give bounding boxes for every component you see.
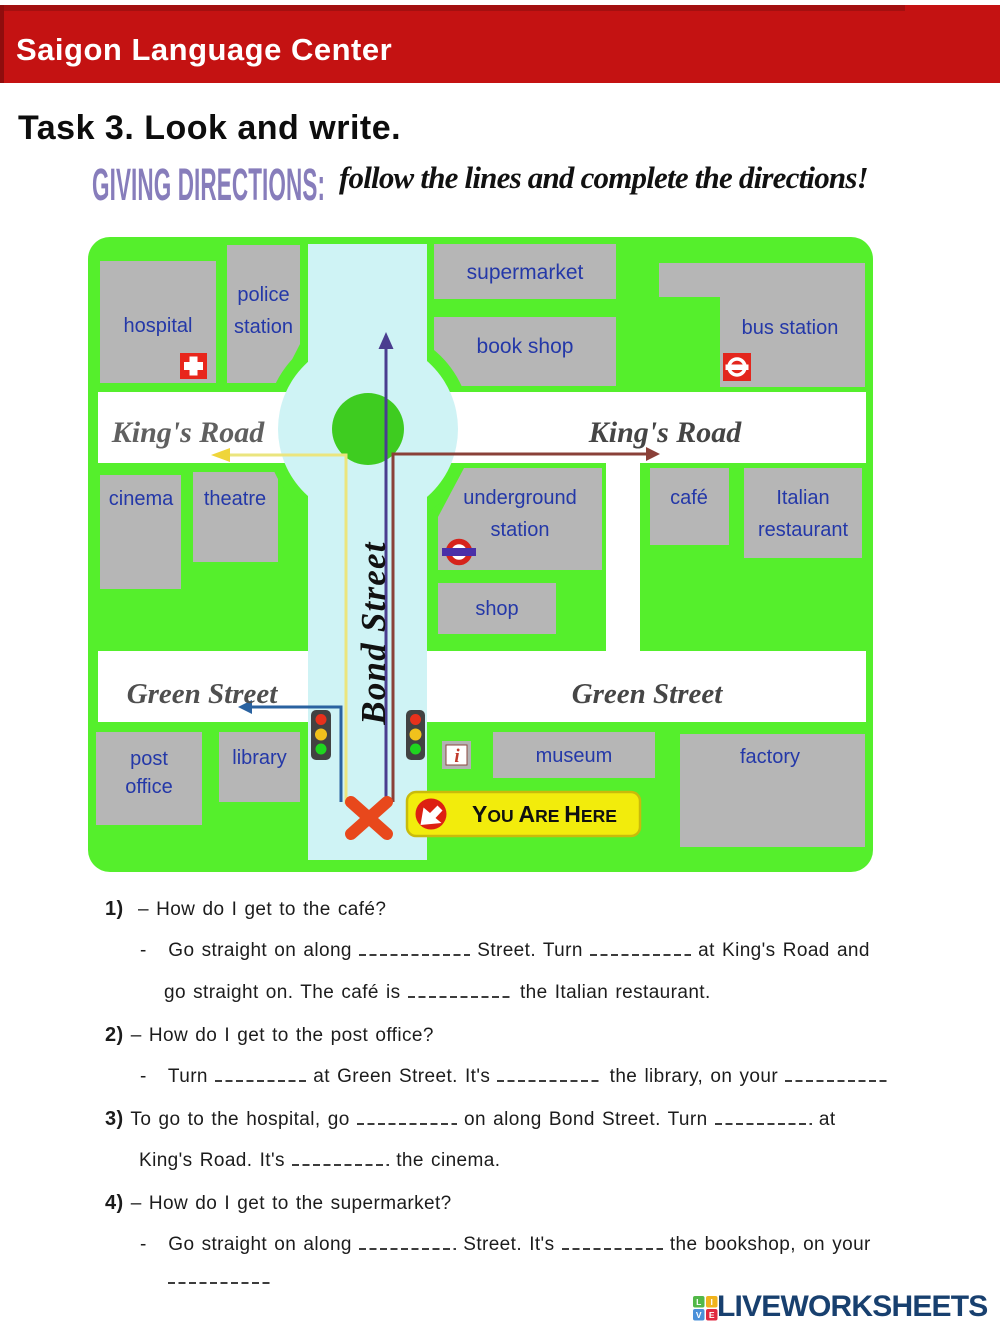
- svg-text:post: post: [130, 748, 168, 770]
- svg-text:underground: underground: [463, 487, 576, 509]
- svg-text:King's Road: King's Road: [588, 416, 743, 449]
- svg-text:station: station: [491, 519, 550, 541]
- svg-text:i: i: [454, 746, 460, 767]
- svg-text:cinema: cinema: [109, 488, 174, 510]
- svg-text:police: police: [237, 284, 289, 306]
- svg-text:station: station: [234, 316, 293, 338]
- svg-text:bus station: bus station: [742, 317, 839, 339]
- svg-text:book shop: book shop: [477, 335, 574, 358]
- svg-text:factory: factory: [740, 746, 800, 768]
- svg-text:Italian: Italian: [776, 487, 829, 509]
- svg-text:V: V: [696, 1310, 702, 1320]
- svg-text:Bond Street: Bond Street: [354, 541, 393, 725]
- svg-text:theatre: theatre: [204, 488, 266, 510]
- svg-text:restaurant: restaurant: [758, 519, 848, 541]
- svg-text:café: café: [670, 487, 708, 509]
- svg-text:I: I: [711, 1297, 713, 1307]
- svg-text:E: E: [709, 1310, 715, 1320]
- svg-text:library: library: [232, 747, 286, 769]
- svg-text:office: office: [125, 776, 172, 798]
- svg-text:Green Street: Green Street: [127, 678, 279, 710]
- svg-text:hospital: hospital: [124, 315, 193, 337]
- svg-text:museum: museum: [536, 745, 613, 767]
- svg-text:L: L: [696, 1297, 701, 1307]
- svg-text:Green Street: Green Street: [572, 678, 724, 710]
- svg-text:King's Road: King's Road: [111, 416, 266, 449]
- svg-text:supermarket: supermarket: [467, 261, 584, 284]
- svg-text:shop: shop: [475, 598, 518, 620]
